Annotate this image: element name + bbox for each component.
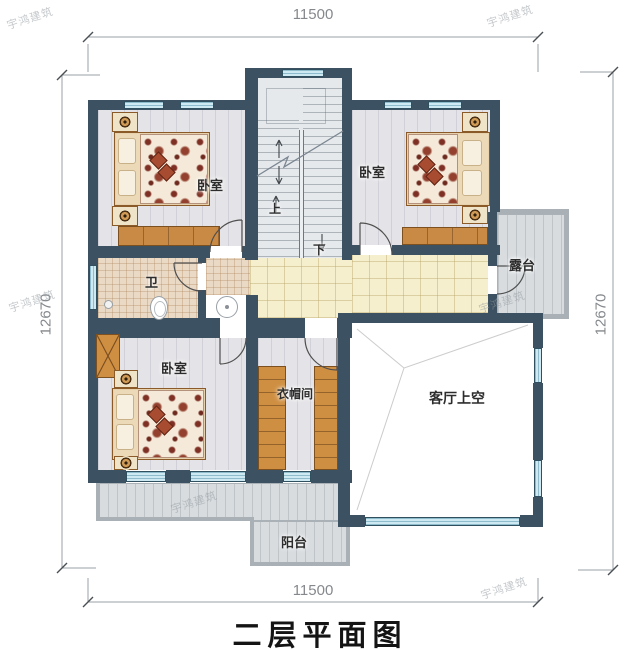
lamp-icon — [118, 115, 132, 129]
pillow — [462, 140, 482, 166]
room-label-bedroom-bottom-left: 卧室 — [161, 358, 187, 377]
watermark: 宇鸿建筑 — [169, 487, 220, 517]
stair-direction-arrows — [273, 140, 325, 250]
watermark: 宇鸿建筑 — [477, 287, 528, 317]
stair-label-down: 下 — [313, 241, 325, 258]
room-label-bedroom-top-right: 卧室 — [359, 162, 385, 181]
lamp-icon — [468, 115, 482, 129]
room-label-terrace: 露台 — [509, 255, 535, 274]
lamp-icon — [119, 372, 133, 386]
pillow — [116, 394, 134, 420]
lamp-icon — [119, 456, 133, 470]
sink-icon — [216, 296, 238, 318]
dimension-lines — [62, 37, 613, 602]
dimension-bottom: 11500 — [263, 582, 363, 599]
pillow — [118, 138, 136, 164]
pillow — [116, 424, 134, 450]
floor-plan: 卧室 卧室 卧室 卫 衣帽间 客厅上空 露台 阳台 上 下 11500 1150… — [0, 0, 640, 650]
room-label-balcony: 阳台 — [281, 532, 307, 551]
room-label-bedroom-top-left: 卧室 — [197, 175, 223, 194]
floor-drain-icon — [104, 300, 113, 309]
cloakroom-wardrobe — [258, 366, 286, 470]
dimension-right: 12670 — [593, 277, 610, 353]
pillow — [118, 170, 136, 196]
door-bedroom-bottom-left — [220, 338, 246, 364]
void-lines — [357, 325, 528, 510]
dimension-top: 11500 — [263, 6, 363, 23]
toilet-icon — [150, 296, 168, 320]
plan-decor: 卧室 卧室 卧室 卫 衣帽间 客厅上空 露台 阳台 上 下 11500 1150… — [0, 0, 640, 650]
lamp-icon — [468, 208, 482, 222]
dresser — [118, 226, 220, 246]
room-label-bathroom: 卫 — [145, 272, 158, 291]
stair-break-line — [257, 131, 343, 176]
watermark: 宇鸿建筑 — [485, 1, 536, 31]
door-bedroom-top-right — [360, 223, 392, 255]
door-bathroom — [174, 263, 202, 291]
watermark: 宇鸿建筑 — [5, 3, 56, 33]
dresser — [402, 227, 488, 245]
dimension-ticks — [57, 32, 618, 607]
cloakroom-wardrobe — [314, 366, 338, 470]
plan-linework — [0, 0, 640, 650]
stair-label-up: 上 — [269, 200, 281, 217]
lamp-icon — [118, 209, 132, 223]
room-label-cloakroom: 衣帽间 — [277, 385, 313, 402]
room-label-living-void: 客厅上空 — [429, 388, 485, 408]
watermark: 宇鸿建筑 — [479, 573, 530, 603]
pillow — [462, 170, 482, 196]
plan-title: 二层平面图 — [200, 612, 440, 650]
